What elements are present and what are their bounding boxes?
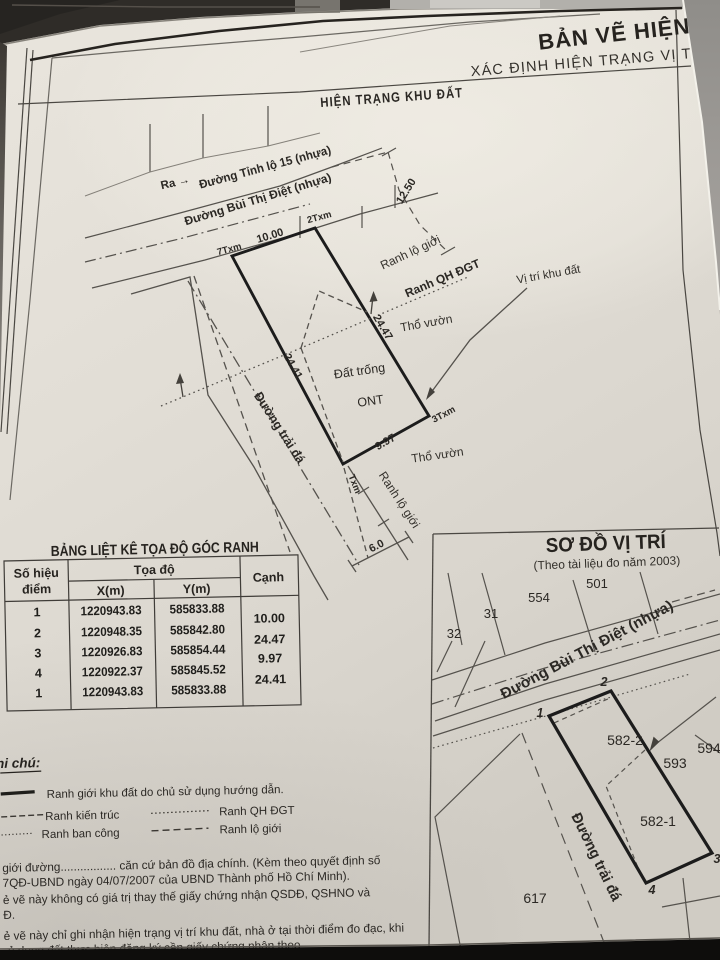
svg-text:điểm: điểm [22, 582, 51, 597]
svg-text:585842.80: 585842.80 [170, 622, 225, 637]
svg-text:1220943.83: 1220943.83 [80, 603, 141, 618]
svg-text:3: 3 [34, 646, 41, 660]
svg-text:Tọa độ: Tọa độ [134, 562, 176, 577]
svg-text:582-2: 582-2 [607, 732, 643, 748]
svg-text:501: 501 [586, 576, 608, 591]
svg-text:593: 593 [663, 755, 687, 771]
svg-text:10.00: 10.00 [253, 611, 285, 626]
svg-text:585833.88: 585833.88 [171, 682, 226, 697]
svg-text:594: 594 [697, 740, 720, 756]
svg-text:31: 31 [484, 606, 498, 621]
svg-text:617: 617 [523, 890, 547, 906]
svg-text:585845.52: 585845.52 [171, 662, 226, 677]
svg-text:585854.44: 585854.44 [170, 642, 225, 657]
svg-text:1: 1 [33, 605, 40, 619]
svg-text:585833.88: 585833.88 [169, 601, 224, 616]
svg-text:2: 2 [600, 675, 608, 689]
svg-text:Số hiệu: Số hiệu [14, 566, 59, 581]
svg-text:Ranh QH ĐGT: Ranh QH ĐGT [219, 805, 295, 819]
svg-text:1: 1 [537, 706, 544, 720]
svg-text:1220926.83: 1220926.83 [81, 644, 142, 659]
svg-text:Ranh lộ giới: Ranh lộ giới [219, 823, 281, 836]
svg-text:4: 4 [35, 666, 42, 680]
svg-text:Cạnh: Cạnh [253, 570, 285, 585]
svg-text:X(m): X(m) [97, 583, 125, 598]
svg-text:554: 554 [528, 590, 550, 605]
svg-text:Ranh kiến trúc: Ranh kiến trúc [45, 810, 120, 824]
svg-text:2: 2 [34, 626, 41, 640]
svg-text:1: 1 [35, 686, 42, 700]
svg-text:Y(m): Y(m) [183, 582, 211, 597]
svg-text:24.41: 24.41 [255, 672, 287, 687]
svg-text:9.97: 9.97 [258, 651, 283, 666]
svg-text:4: 4 [648, 883, 656, 897]
svg-text:Đ.: Đ. [3, 908, 15, 922]
svg-text:1220948.35: 1220948.35 [81, 624, 142, 639]
svg-text:1220922.37: 1220922.37 [82, 664, 143, 679]
svg-text:24.47: 24.47 [254, 632, 286, 647]
svg-text:1220943.83: 1220943.83 [82, 684, 143, 699]
svg-text:582-1: 582-1 [640, 813, 676, 829]
svg-text:32: 32 [447, 626, 461, 641]
svg-text:Ranh ban công: Ranh ban công [41, 828, 119, 842]
svg-text:3: 3 [714, 852, 720, 866]
svg-text:hi chú:: hi chú: [0, 755, 40, 771]
